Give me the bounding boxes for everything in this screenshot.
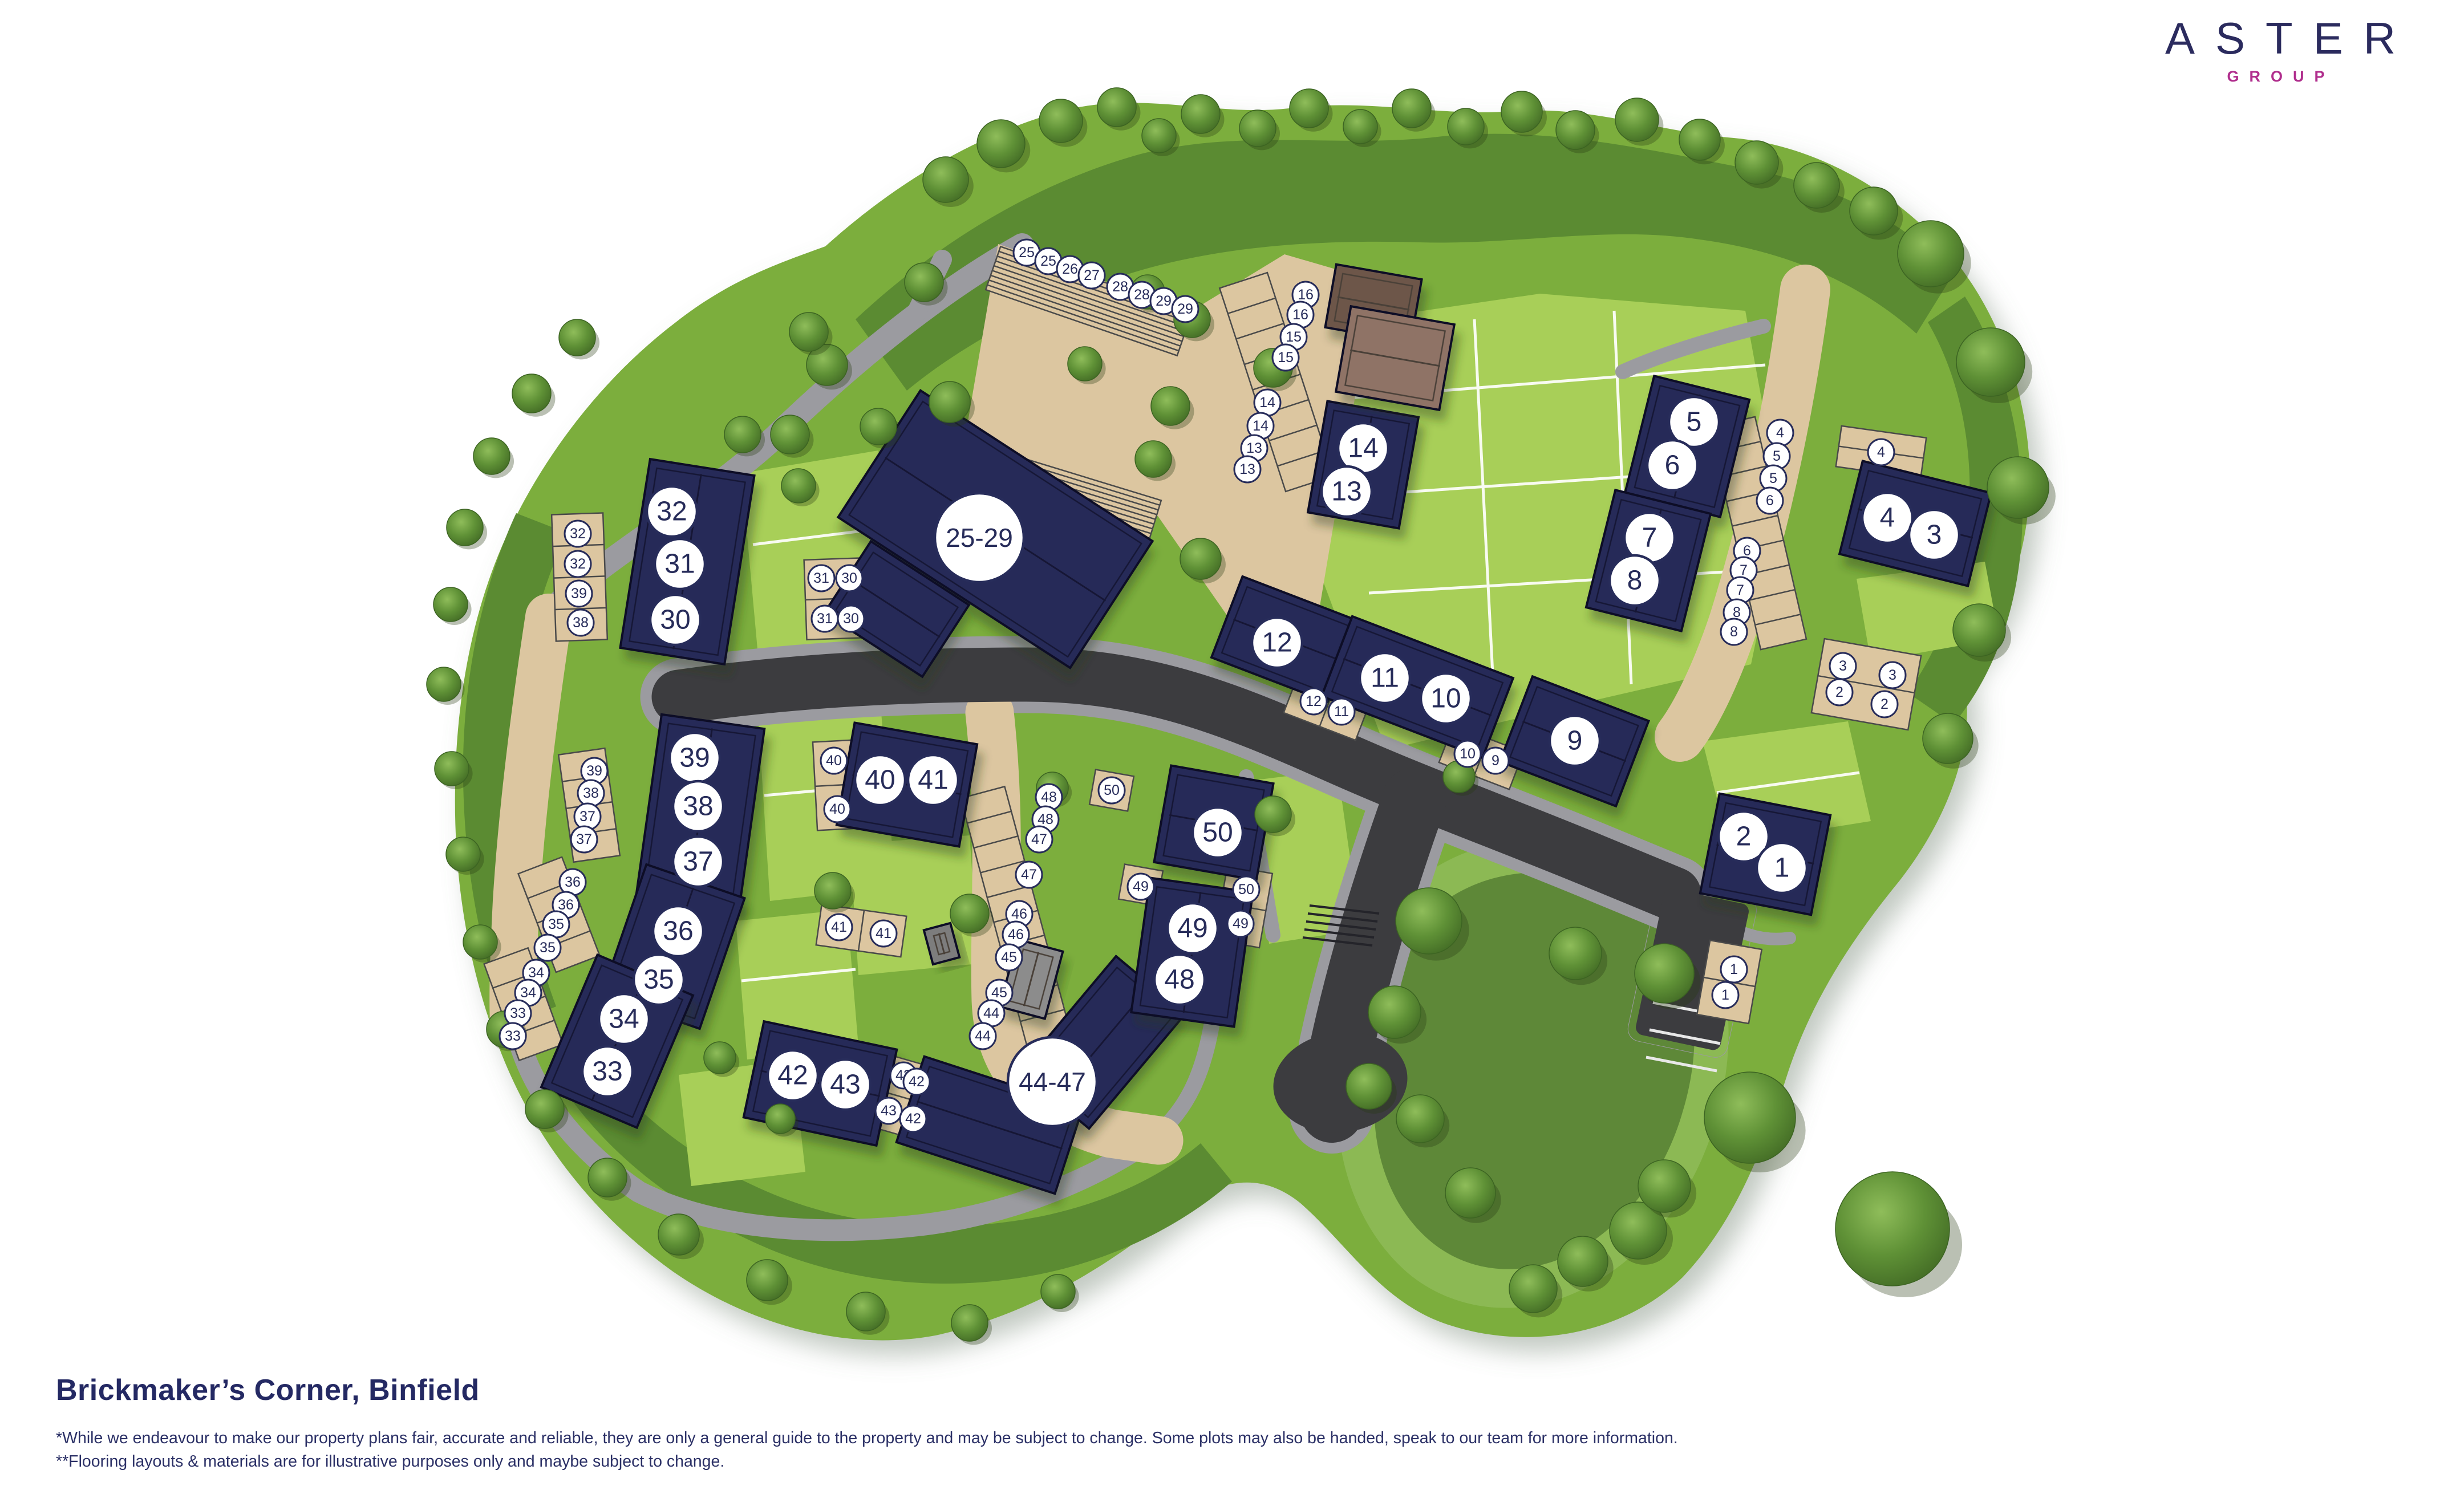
svg-text:42: 42 xyxy=(909,1074,925,1090)
svg-text:41: 41 xyxy=(876,925,891,941)
svg-text:34: 34 xyxy=(520,985,536,1001)
svg-text:29: 29 xyxy=(1177,301,1193,317)
page-title: Brickmaker’s Corner, Binfield xyxy=(56,1373,1678,1407)
logo-sub-text: GROUP xyxy=(2145,68,2407,86)
parking-badge-42: 42 xyxy=(900,1106,926,1132)
svg-text:38: 38 xyxy=(583,785,599,801)
parking-badge-6: 6 xyxy=(1757,488,1783,514)
parking-badge-14: 14 xyxy=(1254,389,1280,416)
svg-text:7: 7 xyxy=(1740,562,1748,578)
parking-badge-2: 2 xyxy=(1826,679,1853,705)
parking-badge-10: 10 xyxy=(1454,741,1481,767)
tree-icon xyxy=(473,438,514,478)
svg-text:34: 34 xyxy=(609,1004,639,1034)
svg-text:11: 11 xyxy=(1334,704,1349,720)
tree-icon xyxy=(559,319,599,359)
parking-badge-37: 37 xyxy=(574,803,601,830)
svg-text:28: 28 xyxy=(1112,279,1128,295)
parking-badge-33: 33 xyxy=(500,1023,526,1049)
svg-text:35: 35 xyxy=(643,965,674,995)
svg-text:49: 49 xyxy=(1133,879,1149,895)
svg-text:8: 8 xyxy=(1730,624,1738,640)
parking-badge-4: 4 xyxy=(1868,439,1894,465)
svg-text:30: 30 xyxy=(660,605,690,635)
parking-badge-13: 13 xyxy=(1234,456,1261,482)
svg-text:49: 49 xyxy=(1177,914,1207,944)
svg-text:47: 47 xyxy=(1021,867,1037,883)
svg-text:34: 34 xyxy=(528,965,544,981)
svg-text:35: 35 xyxy=(540,940,556,956)
svg-text:26: 26 xyxy=(1062,261,1078,277)
parking-badge-27: 27 xyxy=(1079,262,1105,289)
svg-text:48: 48 xyxy=(1041,789,1057,805)
svg-text:42: 42 xyxy=(905,1111,921,1127)
site-plan: 3232393831303130252526272828292916161515… xyxy=(0,0,2464,1490)
svg-text:4: 4 xyxy=(1776,425,1784,441)
svg-text:6: 6 xyxy=(1766,493,1774,509)
svg-text:44-47: 44-47 xyxy=(1019,1067,1086,1097)
tree-icon xyxy=(427,667,465,705)
svg-text:36: 36 xyxy=(558,897,574,913)
svg-text:29: 29 xyxy=(1156,293,1172,309)
svg-text:3: 3 xyxy=(1839,658,1847,674)
parking-badge-8: 8 xyxy=(1721,619,1747,645)
parking-badge-15: 15 xyxy=(1272,344,1299,371)
svg-text:41: 41 xyxy=(831,919,847,935)
svg-text:38: 38 xyxy=(683,791,713,822)
parking-badge-9: 9 xyxy=(1482,748,1509,774)
svg-text:46: 46 xyxy=(1011,906,1027,922)
plot-badge-3[interactable]: 3 xyxy=(1909,510,1959,560)
parking-badge-37: 37 xyxy=(571,826,597,852)
parking-badge-29: 29 xyxy=(1172,296,1198,322)
svg-text:42: 42 xyxy=(777,1061,808,1091)
tree-icon xyxy=(512,374,555,417)
plot-badge-38[interactable]: 38 xyxy=(673,781,723,831)
svg-text:5: 5 xyxy=(1773,448,1781,464)
plot-badge-8[interactable]: 8 xyxy=(1610,555,1660,606)
svg-text:5: 5 xyxy=(1687,407,1702,437)
plot-badge-25-29[interactable]: 25-29 xyxy=(935,493,1024,582)
parking-badge-40: 40 xyxy=(824,796,850,822)
plot-badge-42[interactable]: 42 xyxy=(768,1050,818,1101)
parking-badge-30: 30 xyxy=(836,565,862,591)
svg-text:41: 41 xyxy=(918,765,948,795)
svg-text:30: 30 xyxy=(843,611,859,627)
svg-text:50: 50 xyxy=(1104,782,1120,798)
parking-badge-35: 35 xyxy=(543,911,569,937)
parking-badge-35: 35 xyxy=(534,935,561,961)
plot-badge-49[interactable]: 49 xyxy=(1168,903,1218,953)
svg-text:44: 44 xyxy=(975,1028,991,1044)
footer: Brickmaker’s Corner, Binfield *While we … xyxy=(56,1373,1678,1473)
parking-badge-43: 43 xyxy=(876,1098,902,1124)
parking-badge-44: 44 xyxy=(970,1023,996,1049)
aster-group-logo: ASTER GROUP xyxy=(2145,13,2407,86)
svg-text:33: 33 xyxy=(592,1057,622,1087)
svg-text:28: 28 xyxy=(1134,287,1150,303)
svg-text:14: 14 xyxy=(1348,433,1378,464)
svg-text:40: 40 xyxy=(865,765,895,795)
disclaimer-line-1: *While we endeavour to make our property… xyxy=(56,1427,1678,1450)
svg-text:15: 15 xyxy=(1286,329,1302,345)
svg-text:14: 14 xyxy=(1259,395,1275,411)
parking-badge-32: 32 xyxy=(565,521,591,547)
svg-text:2: 2 xyxy=(1736,822,1752,852)
plot-badge-4[interactable]: 4 xyxy=(1862,493,1912,543)
plot-badge-39[interactable]: 39 xyxy=(670,733,720,783)
plot-badge-40[interactable]: 40 xyxy=(855,755,905,805)
parking-badge-33: 33 xyxy=(505,1000,531,1026)
svg-text:2: 2 xyxy=(1881,696,1888,712)
svg-text:45: 45 xyxy=(1001,949,1017,965)
plot-badge-35[interactable]: 35 xyxy=(634,955,684,1005)
plot-badge-9[interactable]: 9 xyxy=(1550,716,1600,766)
parking-badge-11: 11 xyxy=(1328,699,1355,725)
svg-text:27: 27 xyxy=(1084,267,1100,283)
existing-building-body xyxy=(1336,306,1454,410)
svg-text:38: 38 xyxy=(573,615,589,631)
svg-text:2: 2 xyxy=(1835,684,1843,700)
parking-stall-strip xyxy=(1811,639,1921,730)
svg-text:39: 39 xyxy=(571,586,587,602)
svg-text:1: 1 xyxy=(1774,853,1790,883)
svg-text:47: 47 xyxy=(1031,831,1047,847)
svg-text:37: 37 xyxy=(683,847,713,877)
svg-text:4: 4 xyxy=(1877,444,1885,460)
plot-badge-10[interactable]: 10 xyxy=(1421,673,1471,724)
plot-badge-34[interactable]: 34 xyxy=(599,994,649,1044)
svg-text:50: 50 xyxy=(1202,818,1233,848)
svg-text:8: 8 xyxy=(1627,566,1643,596)
svg-text:3: 3 xyxy=(1888,667,1896,683)
parking-badge-1: 1 xyxy=(1721,956,1747,982)
svg-text:25: 25 xyxy=(1019,245,1035,261)
svg-text:32: 32 xyxy=(570,526,586,542)
svg-text:46: 46 xyxy=(1008,927,1024,943)
svg-text:32: 32 xyxy=(570,556,586,572)
parking-badge-31: 31 xyxy=(812,606,838,632)
parking-badge-12: 12 xyxy=(1300,688,1327,714)
parking-badge-45: 45 xyxy=(996,944,1022,971)
parking-badge-47: 47 xyxy=(1026,826,1052,852)
parking-badge-38: 38 xyxy=(578,780,604,806)
svg-text:4: 4 xyxy=(1880,503,1895,533)
parking-badge-3: 3 xyxy=(1830,653,1856,679)
svg-text:10: 10 xyxy=(1430,684,1461,714)
svg-text:49: 49 xyxy=(1233,916,1249,932)
svg-text:10: 10 xyxy=(1460,746,1476,762)
plot-badge-11[interactable]: 11 xyxy=(1360,653,1410,703)
svg-text:13: 13 xyxy=(1246,440,1262,456)
svg-text:12: 12 xyxy=(1262,628,1292,658)
svg-text:16: 16 xyxy=(1292,307,1308,323)
svg-text:45: 45 xyxy=(991,985,1007,1001)
parking-badge-32: 32 xyxy=(565,551,591,577)
svg-text:39: 39 xyxy=(586,763,602,779)
parking-badge-1: 1 xyxy=(1712,982,1738,1008)
parking-badge-31: 31 xyxy=(808,565,834,591)
svg-text:5: 5 xyxy=(1769,470,1777,486)
svg-text:3: 3 xyxy=(1927,520,1942,550)
parking-badge-40: 40 xyxy=(821,748,847,774)
plot-badge-12[interactable]: 12 xyxy=(1252,618,1302,668)
parking-badge-30: 30 xyxy=(838,606,864,632)
svg-text:1: 1 xyxy=(1730,961,1738,977)
svg-text:13: 13 xyxy=(1239,461,1255,477)
svg-text:14: 14 xyxy=(1253,418,1269,434)
svg-text:7: 7 xyxy=(1736,582,1744,598)
svg-text:15: 15 xyxy=(1278,350,1294,366)
svg-text:11: 11 xyxy=(1371,663,1399,693)
plot-badge-50[interactable]: 50 xyxy=(1193,807,1243,858)
parking-badge-41: 41 xyxy=(826,914,852,940)
parking-badge-49: 49 xyxy=(1227,911,1254,937)
svg-text:37: 37 xyxy=(579,809,595,825)
plot-badge-32[interactable]: 32 xyxy=(647,486,697,537)
parking-badge-39: 39 xyxy=(566,580,592,607)
svg-text:9: 9 xyxy=(1567,726,1583,756)
svg-text:30: 30 xyxy=(841,570,857,586)
parking-badge-4: 4 xyxy=(1767,420,1793,446)
tree-icon xyxy=(433,587,472,625)
svg-text:25: 25 xyxy=(1040,253,1056,269)
parking-badge-2: 2 xyxy=(1871,691,1898,717)
svg-text:50: 50 xyxy=(1238,882,1254,898)
svg-text:31: 31 xyxy=(813,570,829,586)
svg-text:43: 43 xyxy=(881,1103,897,1119)
svg-text:16: 16 xyxy=(1298,287,1314,303)
svg-text:9: 9 xyxy=(1492,753,1500,769)
svg-text:33: 33 xyxy=(505,1028,521,1044)
logo-brand-text: ASTER xyxy=(2145,13,2407,64)
svg-text:40: 40 xyxy=(829,801,845,817)
plot-badge-43[interactable]: 43 xyxy=(820,1059,870,1110)
svg-text:40: 40 xyxy=(826,753,842,769)
svg-text:48: 48 xyxy=(1038,811,1053,827)
svg-text:37: 37 xyxy=(576,831,592,847)
svg-text:44: 44 xyxy=(983,1005,999,1021)
parking-badge-41: 41 xyxy=(870,920,897,947)
parking-badge-42: 42 xyxy=(903,1069,930,1095)
parking-badge-50: 50 xyxy=(1233,876,1259,903)
tree-icon xyxy=(1835,1172,1962,1297)
plot-badge-48[interactable]: 48 xyxy=(1154,955,1205,1005)
parking-badge-38: 38 xyxy=(568,610,594,636)
plot-badge-36[interactable]: 36 xyxy=(653,906,703,956)
plot-badge-6[interactable]: 6 xyxy=(1647,440,1697,490)
svg-text:31: 31 xyxy=(664,549,695,579)
plot-badge-41[interactable]: 41 xyxy=(908,755,958,805)
svg-text:6: 6 xyxy=(1665,450,1680,481)
parking-badge-50: 50 xyxy=(1099,777,1125,803)
svg-text:39: 39 xyxy=(679,743,710,773)
svg-text:36: 36 xyxy=(663,916,693,947)
plot-badge-44-47[interactable]: 44-47 xyxy=(1008,1037,1097,1126)
svg-text:32: 32 xyxy=(656,497,687,527)
svg-text:43: 43 xyxy=(830,1070,860,1100)
svg-text:33: 33 xyxy=(510,1005,526,1021)
plot-badge-31[interactable]: 31 xyxy=(655,539,705,589)
svg-text:1: 1 xyxy=(1721,987,1729,1003)
svg-text:31: 31 xyxy=(817,611,833,627)
tree-icon xyxy=(447,509,487,549)
parking-badge-49: 49 xyxy=(1128,874,1154,900)
plot-badge-13[interactable]: 13 xyxy=(1322,466,1372,517)
svg-text:12: 12 xyxy=(1306,693,1322,709)
svg-text:25-29: 25-29 xyxy=(946,523,1013,553)
parking-badge-3: 3 xyxy=(1879,662,1906,688)
plot-badge-37[interactable]: 37 xyxy=(673,837,723,887)
plot-badge-33[interactable]: 33 xyxy=(582,1046,633,1097)
parking-badge-47: 47 xyxy=(1016,862,1042,888)
svg-text:7: 7 xyxy=(1642,523,1657,553)
svg-text:13: 13 xyxy=(1331,477,1361,507)
svg-text:48: 48 xyxy=(1164,965,1194,995)
svg-text:35: 35 xyxy=(548,916,564,932)
plot-badge-1[interactable]: 1 xyxy=(1757,843,1807,893)
plot-badge-30[interactable]: 30 xyxy=(650,595,700,645)
disclaimer-line-2: **Flooring layouts & materials are for i… xyxy=(56,1450,1678,1473)
svg-text:36: 36 xyxy=(565,874,581,890)
